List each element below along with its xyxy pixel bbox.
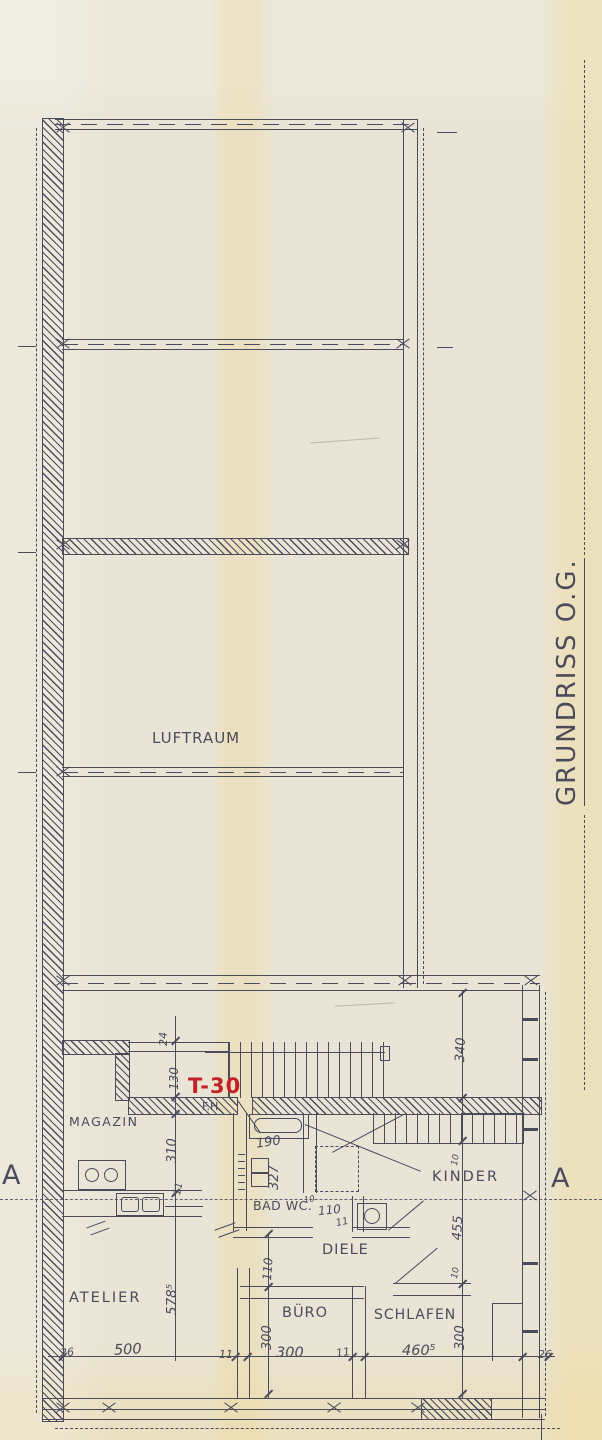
dim-24: 24 <box>158 1032 169 1046</box>
dim-130: 130 <box>168 1067 180 1090</box>
wall-right-upper-dashed-line <box>423 128 424 984</box>
window-mullion-icon <box>56 765 70 779</box>
dim-300-v-right: 300 <box>454 1325 467 1350</box>
extension-tick <box>18 552 36 553</box>
window-mullion-icon <box>396 538 410 552</box>
wall-buero-top <box>240 1286 364 1299</box>
window-mullion-bar <box>522 1058 538 1061</box>
wall-left-outer-dashed-line <box>36 128 37 1413</box>
dim-110-bad: 110 <box>317 1203 341 1217</box>
title-axis-dashed-line <box>584 60 585 555</box>
radiator <box>238 1152 245 1190</box>
wall-lower-floor-top <box>62 975 540 991</box>
dim-10-a: 10 <box>451 1154 462 1167</box>
kitchen-dim-line <box>165 1206 203 1207</box>
cooktop-burner <box>104 1168 118 1182</box>
stair-upper-flight <box>228 1042 387 1098</box>
room-label-atelier: ATELIER <box>69 1291 141 1306</box>
cooktop <box>78 1160 126 1190</box>
fire-door-stamp: T-30 <box>188 1076 241 1097</box>
dim-26-left: 26 <box>60 1347 75 1359</box>
room-label-diele: DIELE <box>322 1243 369 1258</box>
wall-bad-bottom <box>233 1227 313 1238</box>
divider-wall-hatched <box>62 538 409 555</box>
room-label-luftraum: LUFTRAUM <box>152 731 240 746</box>
window-mullion-icon <box>224 1401 238 1415</box>
fh-annotation: F.H. <box>202 1101 222 1112</box>
dim-10-wc: 10 <box>303 1195 315 1205</box>
wall-schlafen-shaft <box>492 1303 523 1361</box>
closet-box <box>462 1113 524 1144</box>
dim-327: 327 <box>268 1165 281 1190</box>
window-mullion-icon <box>524 974 538 988</box>
door-swing-schlafen <box>395 1248 438 1284</box>
door-arrow <box>86 1221 105 1229</box>
dim-11-c: 11 <box>335 1217 350 1229</box>
extension-tick <box>437 132 457 133</box>
title-axis-dashed-line <box>584 815 585 1090</box>
pencil-scribble <box>335 1002 395 1006</box>
section-marker-left: A <box>2 1162 20 1189</box>
room-label-schlafen: SCHLAFEN <box>374 1308 456 1322</box>
dim-300-h: 300 <box>276 1346 304 1361</box>
pencil-scribble <box>310 438 380 444</box>
dim-300-v-left: 300 <box>261 1325 274 1350</box>
window-mullion-bar <box>522 1018 538 1021</box>
dim-190: 190 <box>255 1134 281 1150</box>
door-arrow <box>90 1228 109 1236</box>
dim-310: 310 <box>166 1138 179 1163</box>
wall-buero-schlafen <box>352 1286 366 1398</box>
window-mullion-icon <box>56 974 70 988</box>
window-mullion-icon <box>398 974 412 988</box>
wall-buero-left <box>237 1268 250 1398</box>
window-mullion-icon <box>523 1189 537 1203</box>
floorplan-sheet: GRUNDRISS O.G. LUFTRAUM MAGAZIN ATELIER … <box>0 0 602 1440</box>
shower <box>315 1146 359 1192</box>
section-marker-right: A <box>551 1165 569 1192</box>
window-mullion-icon <box>102 1401 116 1415</box>
dim-460-5: 460⁵ <box>402 1344 436 1359</box>
window-mullion-icon <box>56 121 70 135</box>
dim-26-right: 26 <box>538 1349 552 1360</box>
dim-110-v: 110 <box>261 1257 275 1281</box>
drawing-title: GRUNDRISS O.G. <box>554 558 585 806</box>
bottom-outer-dashed-line <box>55 1428 560 1429</box>
dim-11-b: 11 <box>335 1346 350 1359</box>
extension-tick <box>18 346 36 347</box>
window-mullion-icon <box>56 1401 70 1415</box>
dim-340: 340 <box>454 1037 468 1062</box>
wall-corridor-top <box>128 1042 230 1052</box>
dim-455: 455 <box>451 1215 465 1240</box>
toilet <box>357 1203 387 1230</box>
divider-wall-2 <box>62 767 403 777</box>
dim-578-5: 578⁵ <box>166 1284 180 1315</box>
stair-handrail-post <box>380 1046 390 1061</box>
window-mullion-icon <box>411 1401 425 1415</box>
bottom-right-extension-line <box>541 1414 542 1440</box>
wall-bottom-hatched-segment <box>421 1398 492 1420</box>
bathtub-basin <box>254 1118 302 1133</box>
window-mullion-icon <box>401 121 415 135</box>
dim-10-b: 10 <box>451 1267 462 1280</box>
stair-handrail <box>205 1052 385 1053</box>
cooktop-burner <box>85 1168 99 1182</box>
window-mullion-icon <box>56 538 70 552</box>
window-mullion-bar <box>522 1262 538 1265</box>
room-label-kinder: KINDER <box>432 1170 499 1185</box>
kitchen-sink <box>116 1193 164 1216</box>
divider-wall-1 <box>62 339 403 350</box>
dim-11-a: 11 <box>219 1349 233 1360</box>
window-mullion-bar <box>522 1128 538 1131</box>
window-mullion-icon <box>327 1401 341 1415</box>
room-label-magazin: MAGAZIN <box>69 1116 138 1129</box>
window-mullion-icon <box>56 337 70 351</box>
window-mullion-bar <box>522 1330 538 1333</box>
window-mullion-icon <box>396 337 410 351</box>
extension-tick <box>437 347 453 348</box>
wall-magazin-right <box>115 1053 130 1101</box>
toilet-bowl <box>364 1208 380 1224</box>
room-label-buero: BÜRO <box>282 1306 328 1321</box>
extension-tick <box>18 772 36 773</box>
dim-500: 500 <box>114 1342 142 1358</box>
wall-top-exterior <box>55 119 417 130</box>
